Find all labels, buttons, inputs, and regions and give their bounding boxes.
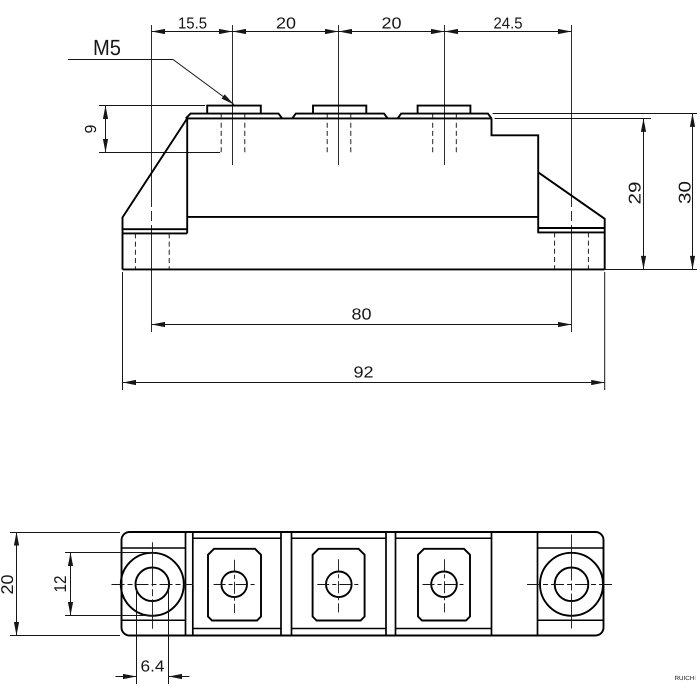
svg-text:15.5: 15.5 [178,16,207,33]
svg-text:12: 12 [51,576,70,593]
svg-text:80: 80 [352,307,372,324]
svg-text:30: 30 [676,181,695,204]
svg-text:RUICHI: RUICHI [675,675,697,682]
svg-text:20: 20 [382,16,402,33]
svg-text:9: 9 [83,124,100,133]
svg-text:24.5: 24.5 [494,16,523,33]
svg-text:20: 20 [276,16,296,33]
svg-text:29: 29 [626,182,645,205]
svg-text:20: 20 [0,575,17,595]
svg-text:6.4: 6.4 [141,659,165,676]
svg-text:M5: M5 [93,35,121,60]
svg-text:92: 92 [354,365,374,382]
